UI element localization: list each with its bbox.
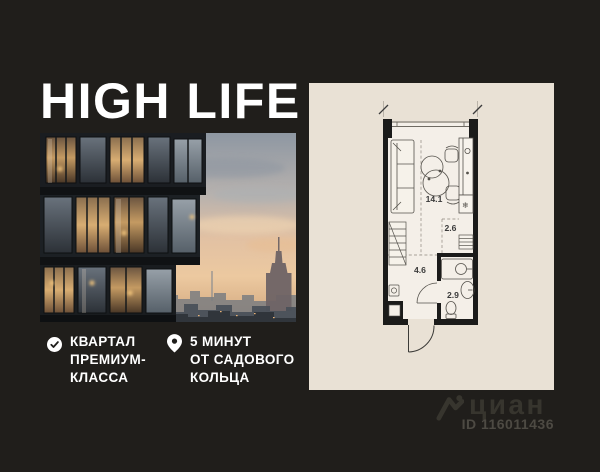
feature-line: КЛАССА bbox=[70, 369, 146, 387]
wardrobe bbox=[389, 222, 406, 265]
room-label-bath: 2.9 bbox=[447, 290, 459, 300]
feature-line: КВАРТАЛ bbox=[70, 333, 146, 351]
feature-line: ОТ САДОВОГО bbox=[190, 351, 295, 369]
feature-line: ПРЕМИУМ- bbox=[70, 351, 146, 369]
laundry-unit bbox=[459, 235, 473, 249]
feature-line: КОЛЬЦА bbox=[190, 369, 295, 387]
feature-location: 5 МИНУТ ОТ САДОВОГО КОЛЬЦА bbox=[190, 333, 295, 386]
cian-watermark-brand: циан bbox=[469, 391, 546, 419]
kitchen-unit bbox=[459, 138, 473, 195]
building-photo bbox=[40, 133, 296, 322]
room-label-living: 14.1 bbox=[426, 194, 443, 204]
floor-plan-panel: ❄ bbox=[309, 83, 554, 390]
room-label-kitchen: 2.6 bbox=[445, 223, 457, 233]
building-photo-art bbox=[40, 133, 296, 322]
feature-premium: КВАРТАЛ ПРЕМИУМ- КЛАССА bbox=[70, 333, 146, 386]
sofa bbox=[391, 140, 414, 213]
shaft-notch bbox=[389, 305, 400, 316]
floor-plan-diagram: ❄ bbox=[309, 83, 554, 390]
ad-card: HIGH LIFE bbox=[0, 0, 600, 472]
entry-door bbox=[409, 325, 435, 352]
fridge: ❄ bbox=[459, 195, 473, 213]
dimension-marks bbox=[379, 101, 482, 117]
location-pin-icon bbox=[167, 334, 182, 358]
room-label-hall: 4.6 bbox=[414, 265, 426, 275]
listing-id: ID 116011436 bbox=[440, 416, 554, 432]
feature-line: 5 МИНУТ bbox=[190, 333, 295, 351]
check-circle-icon bbox=[47, 337, 62, 357]
fridge-icon: ❄ bbox=[462, 201, 469, 210]
page-title: HIGH LIFE bbox=[40, 76, 301, 126]
